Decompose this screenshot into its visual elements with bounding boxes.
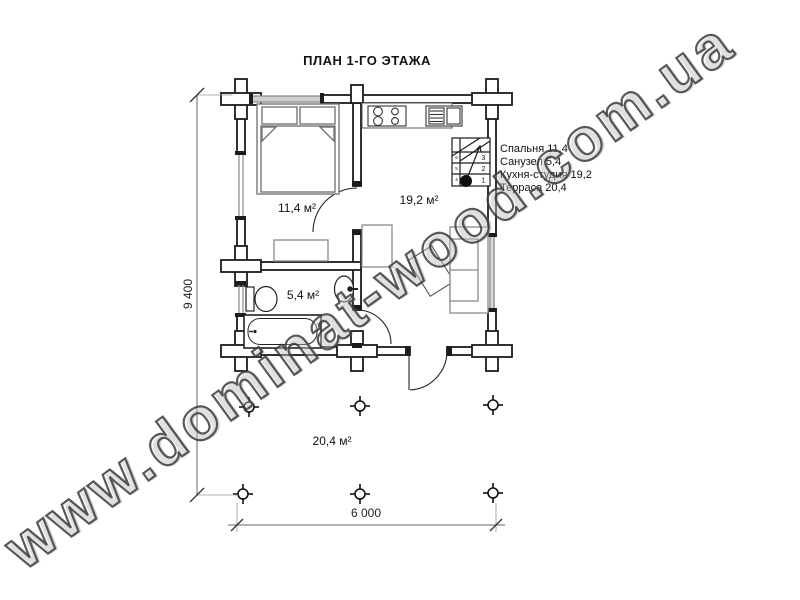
width-dimension-label: 6 000 (330, 506, 402, 520)
terrace-column (233, 484, 253, 504)
terrace-column (350, 484, 370, 504)
kitchen-sink-unit (426, 106, 462, 126)
bathtub-faucet (253, 330, 256, 333)
stairs-newel-post (460, 175, 472, 187)
bedroom-area-label: 11,4 м² (252, 201, 342, 215)
pillow-right (300, 107, 335, 124)
svg-text:2: 2 (482, 166, 486, 173)
terrace-area-label: 20,4 м² (287, 434, 377, 448)
bedroom-chest (274, 240, 328, 261)
legend-item-terrace: Терраса 20,4 (500, 182, 592, 195)
pillow-left (262, 107, 297, 124)
depth-dimension-label: 9 400 (181, 264, 195, 324)
terrace-column (483, 395, 503, 415)
bed (257, 104, 339, 194)
terrace-column (483, 483, 503, 503)
floor-plan-page: 3 2 1 6 5 4 (0, 0, 800, 600)
terrace-column (239, 397, 259, 417)
kitchen-area-label: 19,2 м² (374, 193, 464, 207)
bedroom-left-window (235, 151, 246, 220)
bathroom-area-label: 5,4 м² (258, 288, 348, 302)
legend-item-bedroom: Спальня 11,4 (500, 143, 592, 156)
page-title: ПЛАН 1-ГО ЭТАЖА (257, 53, 477, 68)
legend-item-kitchen: Кухня-студия 19,2 (500, 169, 592, 182)
svg-text:1: 1 (482, 178, 486, 185)
toilet-tank (246, 287, 254, 311)
svg-text:4: 4 (455, 177, 458, 182)
side-table (362, 225, 392, 267)
stove (368, 106, 406, 126)
sofa (450, 227, 488, 313)
sink-bowl (447, 108, 460, 124)
dining-table (408, 246, 454, 296)
terrace-column (350, 396, 370, 416)
room-legend: Спальня 11,4 Санузел 5,4 Кухня-студия 19… (500, 143, 592, 195)
terrace-door-arc (410, 351, 447, 390)
legend-item-bathroom: Санузел 5,4 (500, 156, 592, 169)
svg-text:6: 6 (455, 155, 458, 160)
terrace-columns (233, 395, 503, 504)
svg-text:3: 3 (482, 155, 486, 162)
svg-text:5: 5 (455, 166, 458, 171)
blanket (261, 126, 335, 192)
bathtub (244, 315, 321, 348)
